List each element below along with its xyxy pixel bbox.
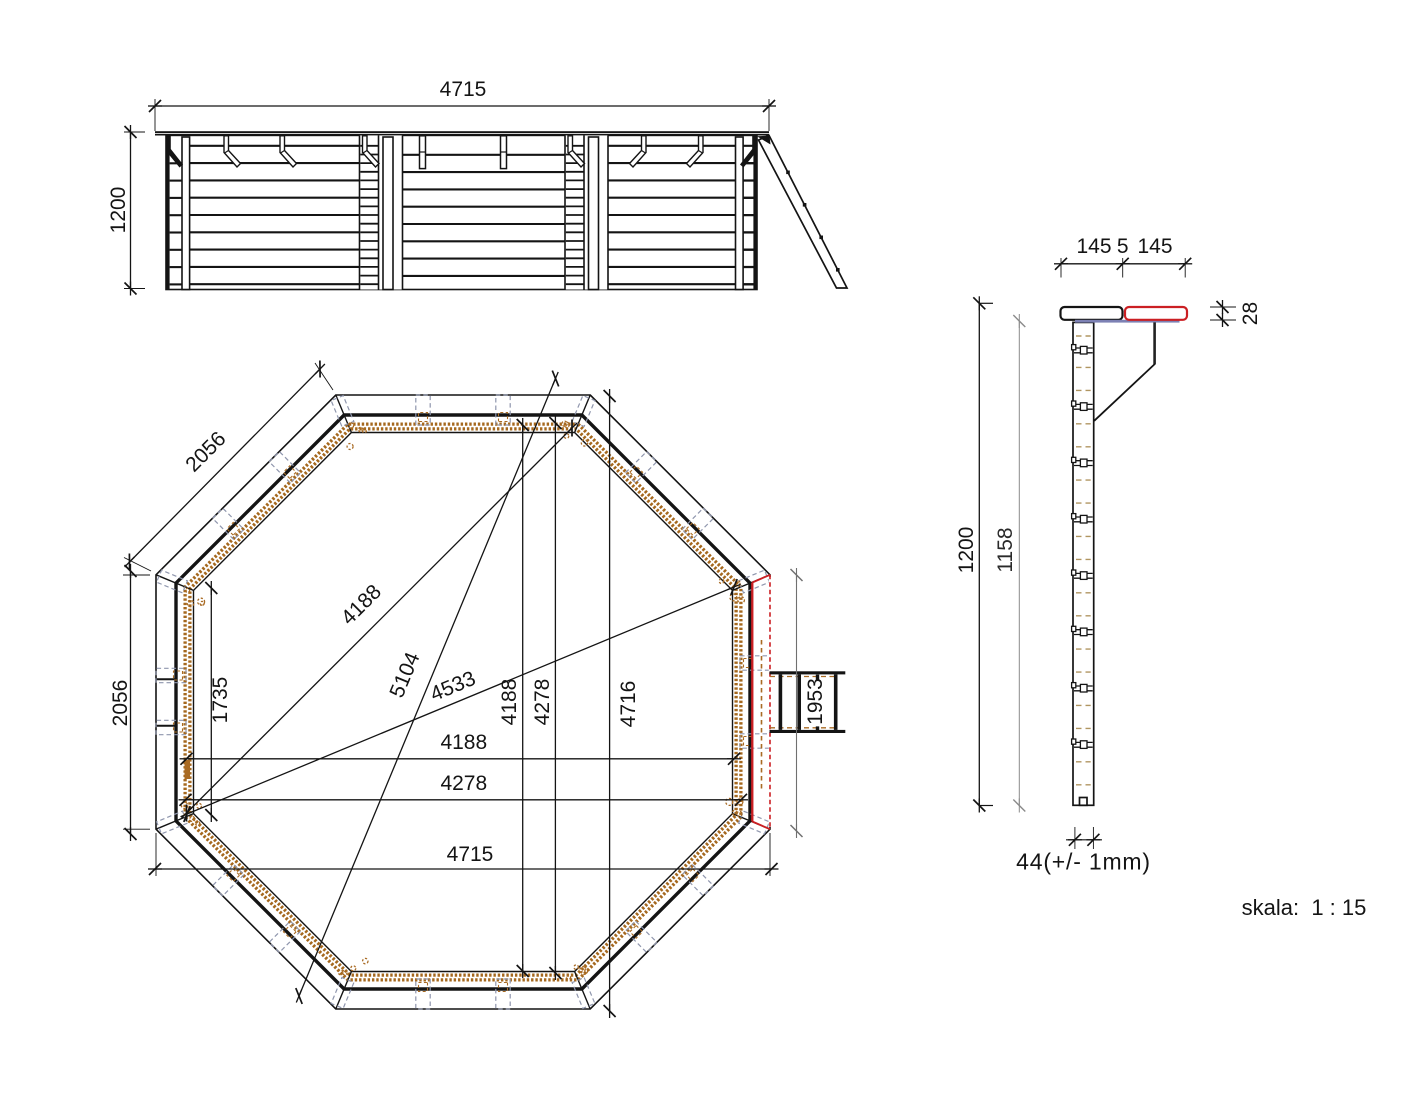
svg-text:1158: 1158 bbox=[994, 527, 1017, 572]
svg-text:145: 145 bbox=[1076, 235, 1111, 258]
svg-text:4188: 4188 bbox=[440, 731, 487, 754]
svg-text:2056: 2056 bbox=[181, 427, 230, 476]
svg-text:4278: 4278 bbox=[440, 772, 487, 795]
svg-text:2056: 2056 bbox=[109, 680, 132, 727]
svg-text:44(+/- 1mm): 44(+/- 1mm) bbox=[1016, 849, 1151, 875]
svg-text:5: 5 bbox=[1117, 235, 1129, 258]
svg-text:4188: 4188 bbox=[498, 679, 521, 726]
svg-text:4716: 4716 bbox=[617, 681, 640, 728]
svg-text:28: 28 bbox=[1239, 302, 1262, 325]
svg-text:4278: 4278 bbox=[531, 679, 554, 726]
svg-text:145: 145 bbox=[1137, 235, 1172, 258]
svg-text:4715: 4715 bbox=[447, 843, 494, 866]
svg-text:1200: 1200 bbox=[955, 527, 978, 574]
svg-text:1200: 1200 bbox=[107, 187, 130, 234]
svg-text:1953: 1953 bbox=[804, 678, 827, 725]
svg-text:skala: 1 : 15: skala: 1 : 15 bbox=[1242, 895, 1367, 920]
svg-text:1735: 1735 bbox=[209, 677, 232, 724]
svg-text:4715: 4715 bbox=[440, 78, 487, 101]
